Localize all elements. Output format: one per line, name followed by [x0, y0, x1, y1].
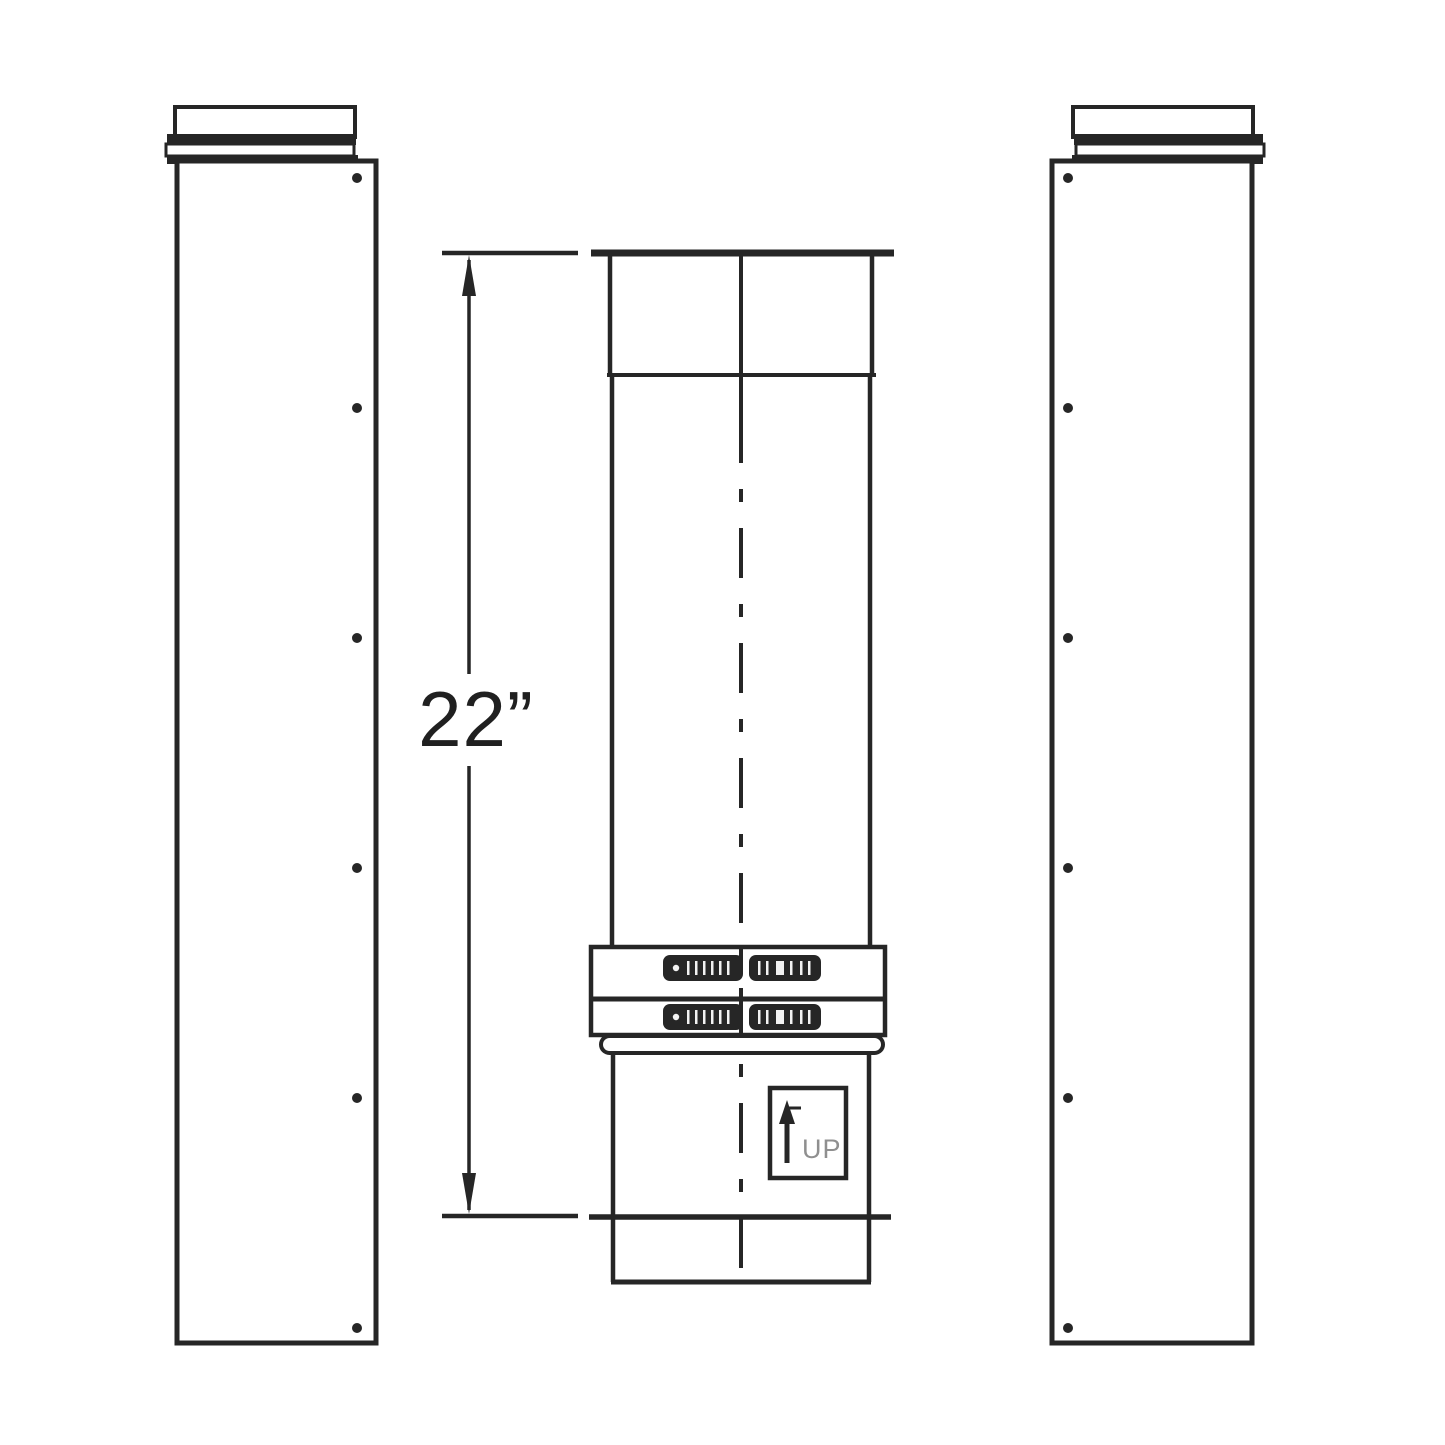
- up-marker-box: [770, 1088, 846, 1178]
- right-panel-cap-top: [1073, 107, 1253, 137]
- rivet: [352, 633, 362, 643]
- left-panel-cap-band: [166, 144, 354, 156]
- rivet: [1063, 1323, 1073, 1333]
- dimension-arrow-up-icon: [462, 255, 476, 296]
- rivet: [352, 863, 362, 873]
- rivet: [352, 403, 362, 413]
- right-panel-body: [1052, 161, 1252, 1343]
- left-panel: [166, 107, 376, 1343]
- up-marker-label: UP: [802, 1134, 842, 1164]
- rivet: [1063, 633, 1073, 643]
- dimension-label: 22”: [418, 675, 534, 763]
- center-pipe: UP: [589, 253, 894, 1282]
- rivet: [1063, 173, 1073, 183]
- left-panel-body: [177, 161, 376, 1343]
- rivet: [1063, 1093, 1073, 1103]
- dimension-arrow-down-icon: [462, 1173, 476, 1214]
- rivet: [352, 173, 362, 183]
- right-panel: [1052, 107, 1264, 1343]
- locking-band: [591, 947, 885, 1035]
- band-label: [663, 1004, 821, 1030]
- rivet: [1063, 403, 1073, 413]
- right-panel-cap-band: [1076, 144, 1264, 156]
- rivet: [352, 1323, 362, 1333]
- band-label: [663, 955, 821, 981]
- up-marker: UP: [770, 1088, 846, 1178]
- rivet: [352, 1093, 362, 1103]
- technical-drawing: UP 22”: [0, 0, 1445, 1445]
- dimension: 22”: [418, 253, 578, 1216]
- left-panel-cap-top: [175, 107, 355, 137]
- rivet: [1063, 863, 1073, 873]
- pipe-section-drawing: UP 22”: [0, 0, 1445, 1445]
- coupling-bead: [601, 1036, 883, 1053]
